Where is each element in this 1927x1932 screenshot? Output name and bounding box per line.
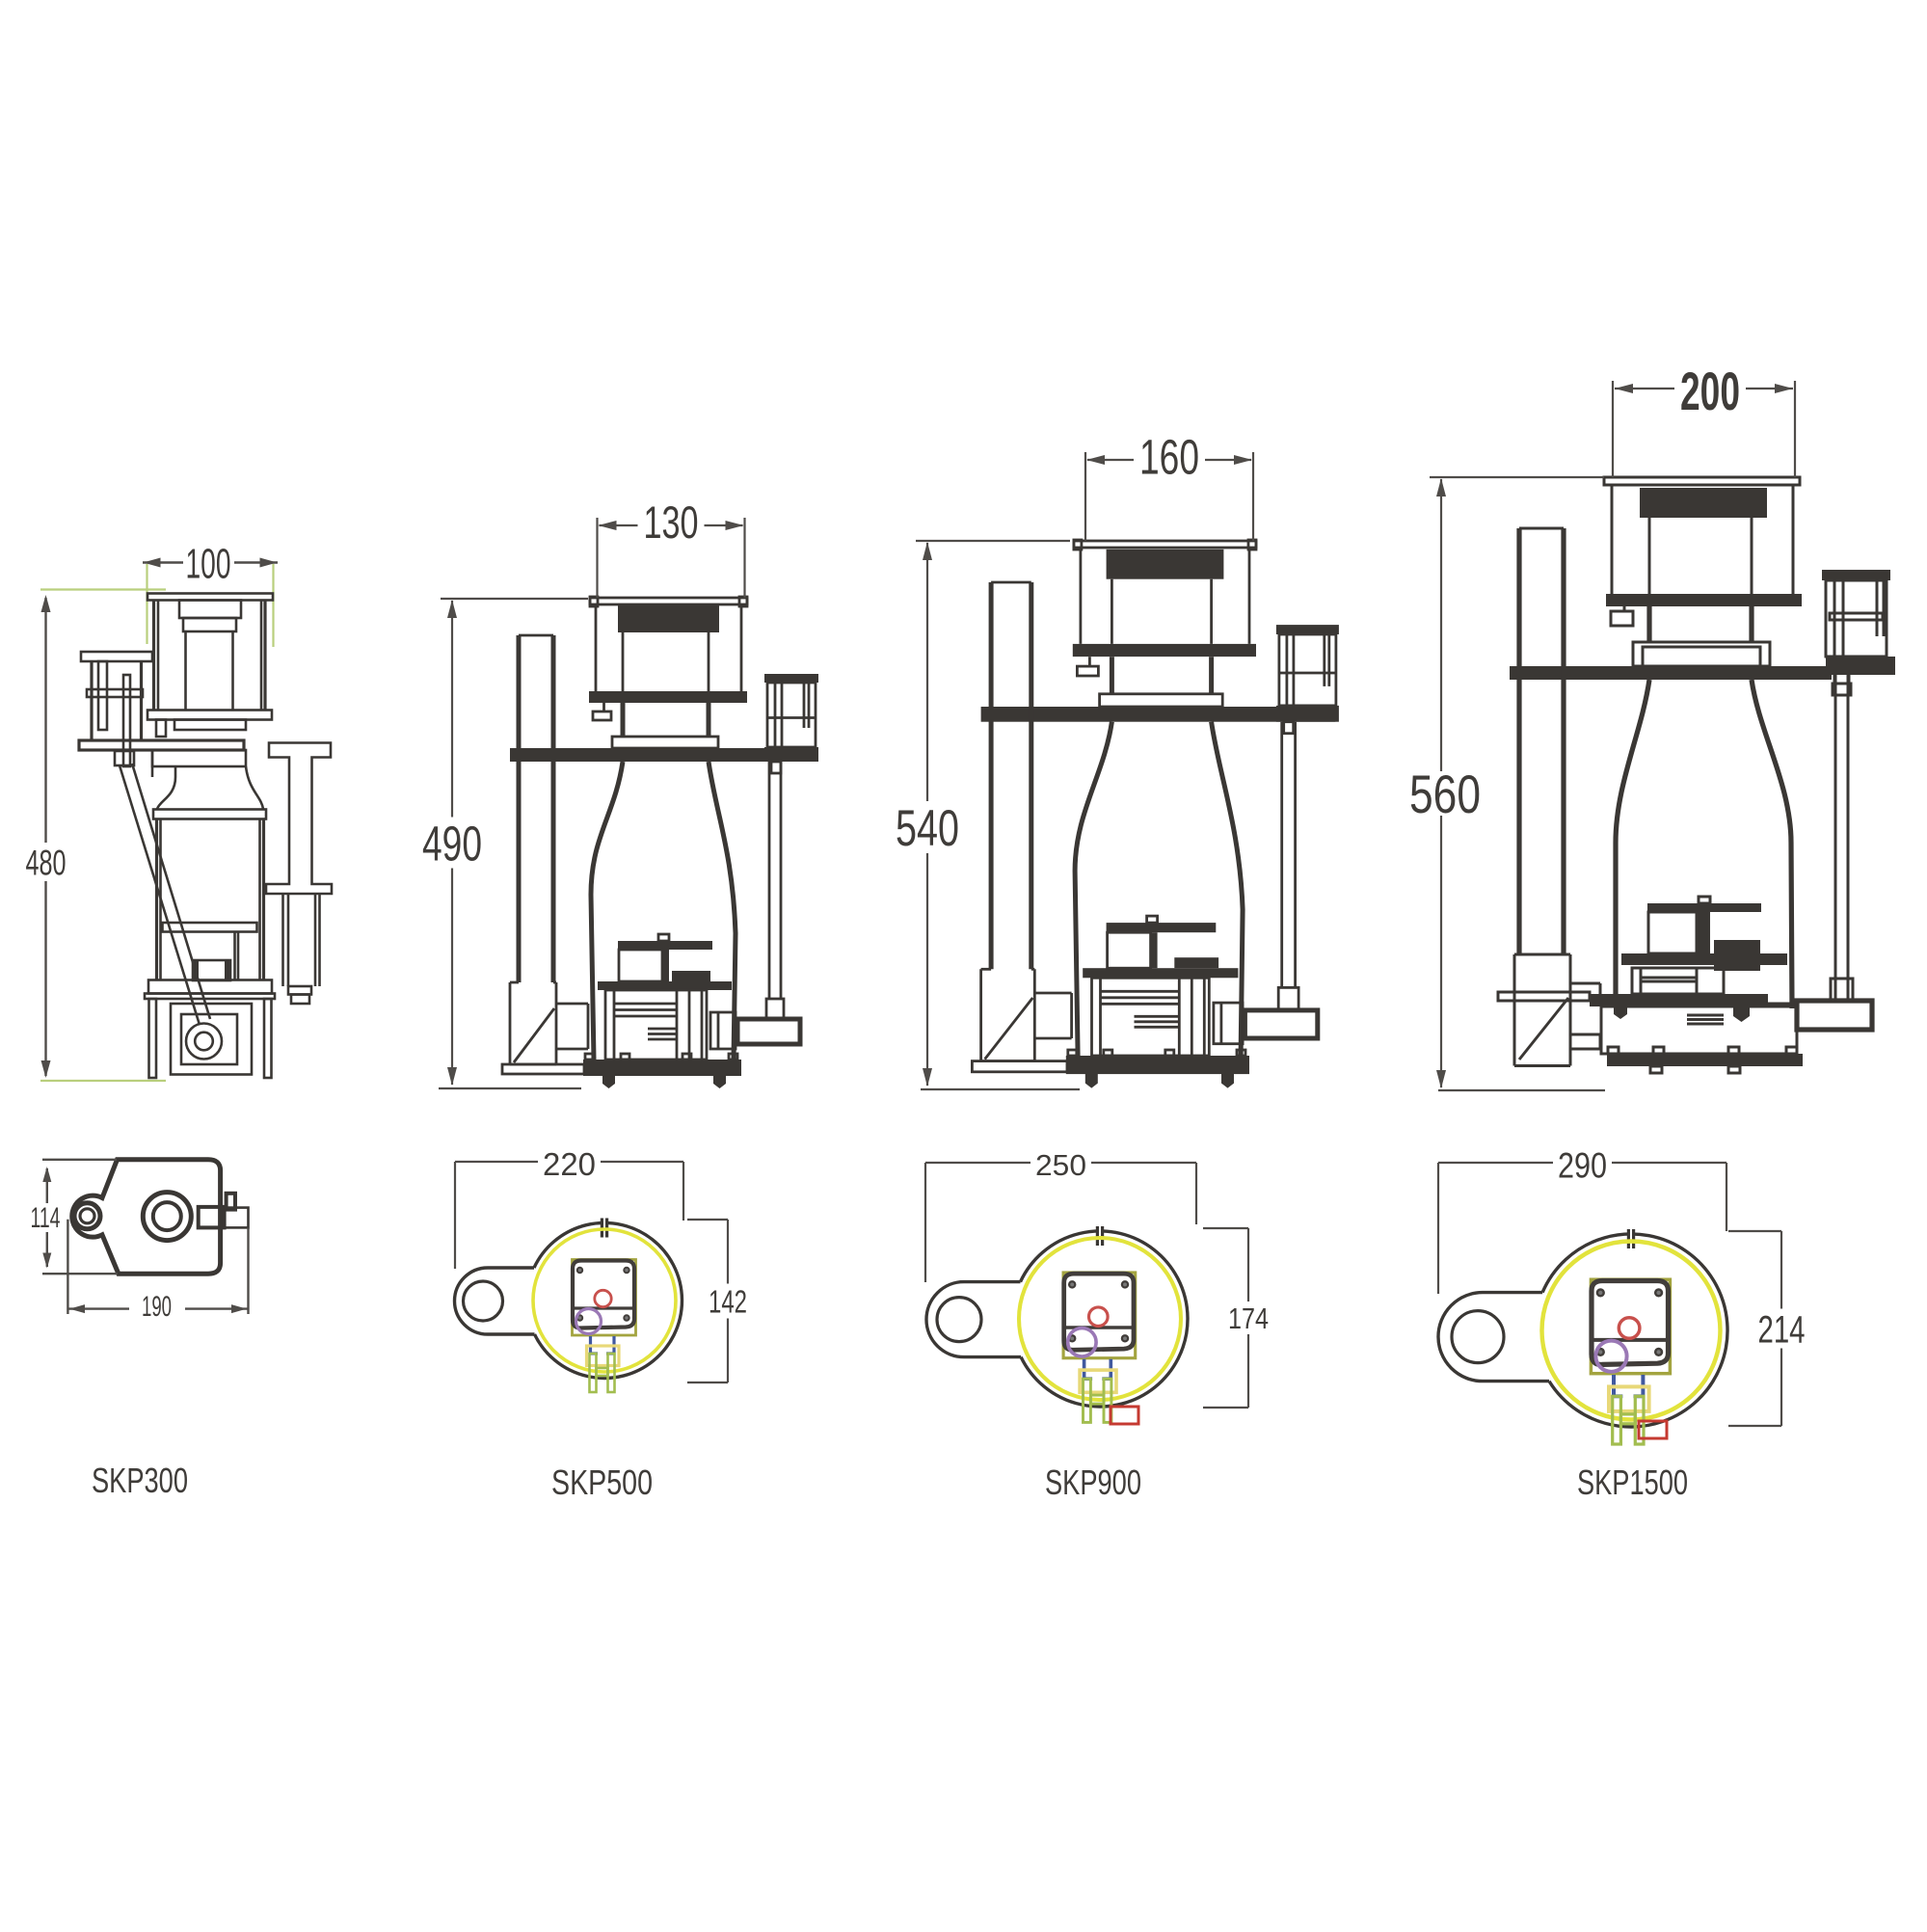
svg-text:190: 190	[142, 1292, 172, 1323]
svg-text:174: 174	[1228, 1302, 1269, 1335]
svg-text:250: 250	[1035, 1149, 1086, 1182]
svg-text:490: 490	[422, 816, 482, 872]
svg-text:142: 142	[709, 1285, 747, 1321]
svg-text:560: 560	[1409, 765, 1481, 824]
svg-text:130: 130	[644, 497, 699, 549]
svg-text:214: 214	[1758, 1308, 1806, 1352]
svg-text:540: 540	[896, 800, 959, 857]
svg-text:114: 114	[31, 1203, 61, 1234]
svg-text:480: 480	[26, 843, 67, 883]
svg-text:200: 200	[1680, 362, 1740, 421]
svg-text:SKP900: SKP900	[1045, 1462, 1141, 1502]
svg-text:SKP500: SKP500	[551, 1462, 653, 1502]
svg-text:SKP1500: SKP1500	[1577, 1462, 1688, 1502]
svg-text:160: 160	[1139, 429, 1199, 485]
svg-text:290: 290	[1558, 1145, 1607, 1186]
svg-text:SKP300: SKP300	[92, 1461, 188, 1500]
svg-text:220: 220	[543, 1147, 596, 1183]
svg-text:100: 100	[186, 542, 231, 588]
